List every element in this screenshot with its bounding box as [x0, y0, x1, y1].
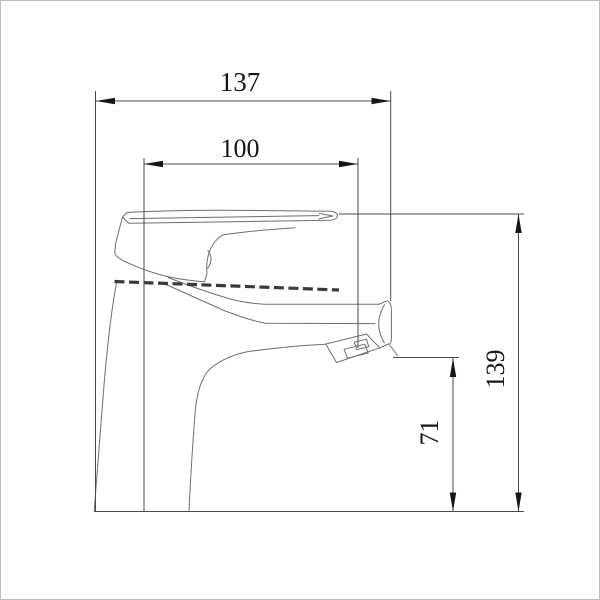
spout-tip-lower-corner	[390, 345, 398, 356]
dimension-label-spout-width: 100	[221, 134, 260, 163]
arrow-71-bottom	[450, 493, 456, 512]
arrow-100-left	[144, 161, 163, 167]
dimension-label-overall-width: 137	[220, 67, 261, 97]
spout-nose-arc	[379, 305, 385, 343]
body-right-edge	[189, 344, 326, 510]
dimension-label-spout-outlet-height: 71	[415, 420, 444, 446]
handle-base	[115, 217, 295, 282]
arrow-139-top	[515, 214, 521, 233]
handle-lever-inner-line	[130, 213, 333, 218]
arrow-100-right	[339, 161, 358, 167]
technical-drawing-canvas: 137 100 139 71	[1, 1, 600, 600]
arrow-137-left	[96, 98, 115, 104]
body-left-edge	[94, 283, 116, 511]
arrow-137-right	[372, 98, 391, 104]
handle-base-pin-detail	[208, 251, 211, 269]
aerator-housing	[326, 334, 380, 363]
faucet-outline	[94, 210, 397, 510]
arrow-139-bottom	[515, 493, 521, 512]
arrow-71-top	[450, 358, 456, 377]
dimension-lines	[94, 91, 524, 512]
dimension-labels: 137 100 139 71	[220, 67, 510, 446]
handle-joint-hatch	[115, 282, 340, 291]
drawing-page: 137 100 139 71	[0, 0, 600, 600]
dimension-label-overall-height: 139	[481, 350, 510, 389]
